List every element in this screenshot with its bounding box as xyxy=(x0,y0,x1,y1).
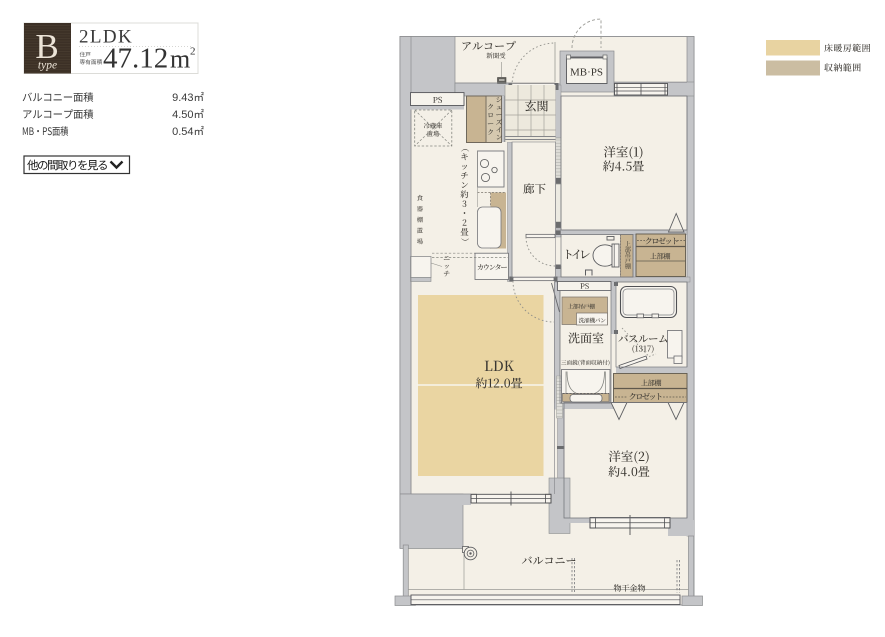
svg-text:4.50: 4.50 xyxy=(172,109,193,121)
svg-text:2: 2 xyxy=(190,46,196,58)
svg-text:0.54: 0.54 xyxy=(172,126,193,138)
svg-text:m: m xyxy=(170,45,190,74)
svg-text:47.12: 47.12 xyxy=(103,43,168,75)
svg-text:MB·PS: MB·PS xyxy=(570,67,603,79)
svg-text:type: type xyxy=(38,60,57,72)
svg-text:9.43: 9.43 xyxy=(172,92,193,104)
